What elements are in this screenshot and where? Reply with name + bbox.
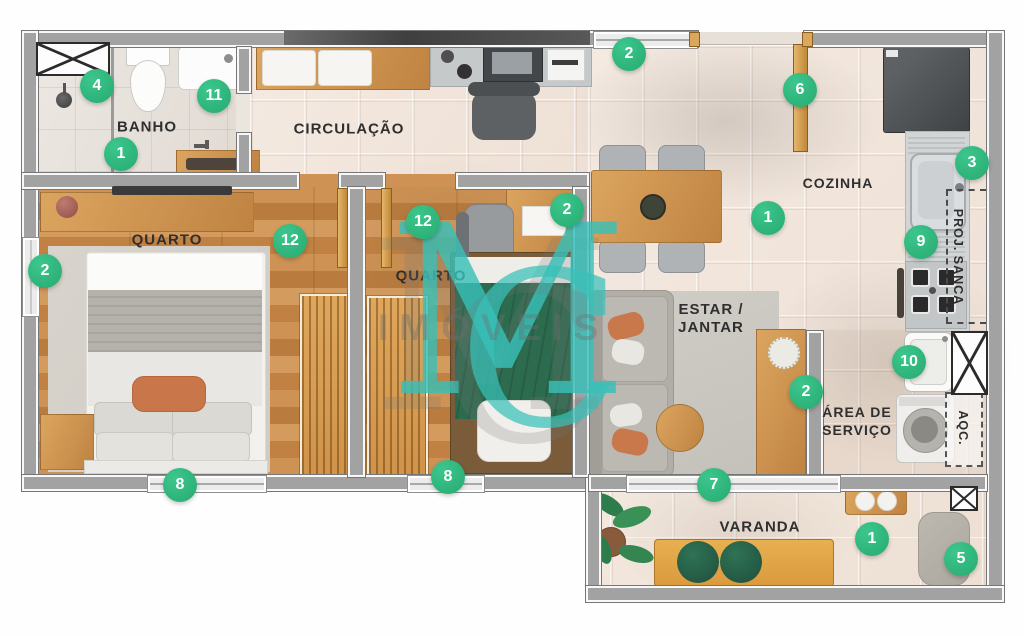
room-label-quarto1: QUARTO (132, 232, 203, 249)
banho-door-threshold (236, 92, 250, 134)
badge-12: 12 (273, 224, 307, 258)
proj-sanca-line (946, 190, 948, 323)
vanity-basin (186, 158, 238, 170)
decor-sphere (768, 337, 800, 369)
wall (21, 474, 602, 492)
badge-1: 1 (104, 137, 138, 171)
room-label-banho: BANHO (117, 119, 177, 136)
quarto2-door (381, 188, 392, 268)
shaft-xbox (951, 331, 988, 395)
bench-cushion-green (720, 541, 762, 583)
washer-panel (899, 397, 950, 406)
label-proj-sanca: PROJ. SANCA (951, 209, 965, 305)
desk-item (441, 50, 454, 63)
shower-arm (63, 83, 66, 95)
tv-panel (112, 186, 232, 195)
badge-3: 3 (955, 146, 989, 180)
tank-faucet (942, 336, 948, 342)
bowl (877, 491, 897, 511)
spice-jars (897, 268, 904, 318)
badge-12: 12 (406, 205, 440, 239)
badge-10: 10 (892, 345, 926, 379)
laptop-screen (492, 52, 532, 74)
badge-2: 2 (789, 375, 823, 409)
bed-blanket (88, 290, 262, 352)
office-chair-back (468, 82, 540, 96)
area-line2: SERVIÇO (822, 421, 892, 439)
fridge-handle (886, 50, 898, 57)
pillow (172, 432, 250, 462)
washer-drum-inner (911, 416, 938, 443)
decor-ball (56, 196, 78, 218)
wall (572, 186, 590, 478)
fridge (883, 47, 970, 133)
badge-4: 4 (80, 69, 114, 103)
sofa-cushion (602, 296, 668, 382)
badge-2: 2 (550, 193, 584, 227)
badge-11: 11 (197, 79, 231, 113)
stove-knob (929, 287, 936, 294)
single-bed-green-blanket (455, 283, 571, 419)
coffee-table (656, 404, 704, 452)
floor-plan: BANHO CIRCULAÇÃO COZINHA QUARTO QUARTO E… (0, 0, 1024, 636)
door-frame (802, 32, 813, 47)
entry-threshold (697, 32, 803, 45)
badge-2: 2 (612, 37, 646, 71)
room-label-varanda: VARANDA (720, 519, 801, 536)
badge-7: 7 (697, 468, 731, 502)
wall-dark-segment (284, 31, 590, 45)
room-label-estar-jantar: ESTAR / JANTAR (678, 301, 744, 337)
burner (911, 295, 930, 314)
wardrobe (300, 294, 351, 476)
vanity-faucet (205, 140, 209, 149)
window (594, 32, 697, 48)
wall (803, 30, 989, 48)
bench-cushion (262, 50, 316, 86)
wall (585, 474, 602, 603)
shaft-xbox (950, 486, 978, 511)
wall (236, 132, 252, 176)
single-bed-pillow (477, 400, 551, 462)
badge-6: 6 (783, 73, 817, 107)
room-label-cozinha: COZINHA (803, 175, 874, 191)
printer-slot (552, 60, 578, 65)
bed-sheet (88, 254, 262, 290)
quarto1-door-threshold (298, 174, 338, 187)
sliding-door (627, 476, 840, 492)
badge-5: 5 (944, 542, 978, 576)
wall (347, 186, 366, 478)
orange-pillow (132, 376, 206, 412)
table-centerpiece (640, 194, 666, 220)
wall (236, 46, 252, 94)
badge-2: 2 (28, 254, 62, 288)
sofa-back (588, 290, 602, 476)
proj-sanca-line (946, 322, 986, 324)
wall (455, 172, 590, 190)
door-frame (689, 32, 700, 47)
bench-cushion (318, 50, 372, 86)
hand-shower (224, 54, 233, 63)
drainboard (908, 134, 965, 154)
office-chair (472, 92, 536, 140)
printer (547, 49, 585, 81)
room-label-area-servico: ÁREA DE SERVIÇO (822, 403, 892, 439)
burner (911, 268, 930, 287)
quarto2-door-threshold (382, 174, 455, 187)
pillow (96, 432, 174, 462)
badge-9: 9 (904, 225, 938, 259)
area-line1: ÁREA DE (822, 403, 892, 421)
quarto1-door (337, 188, 348, 268)
badge-8: 8 (163, 468, 197, 502)
badge-8: 8 (431, 460, 465, 494)
bench-cushion-green (677, 541, 719, 583)
proj-sanca-line (946, 189, 986, 191)
estar-line2: JANTAR (678, 319, 744, 337)
dining-chair (658, 239, 705, 273)
badge-1: 1 (751, 201, 785, 235)
room-label-circulacao: CIRCULAÇÃO (294, 121, 405, 138)
bowl (855, 491, 875, 511)
desk-item (457, 64, 472, 79)
label-aqc: AQC. (956, 410, 970, 445)
dining-chair (599, 239, 646, 273)
estar-line1: ESTAR / (678, 301, 744, 319)
wardrobe (367, 296, 428, 476)
badge-1: 1 (855, 522, 889, 556)
wall (585, 585, 1005, 603)
wall (986, 30, 1005, 603)
room-label-quarto2: QUARTO (396, 268, 467, 285)
